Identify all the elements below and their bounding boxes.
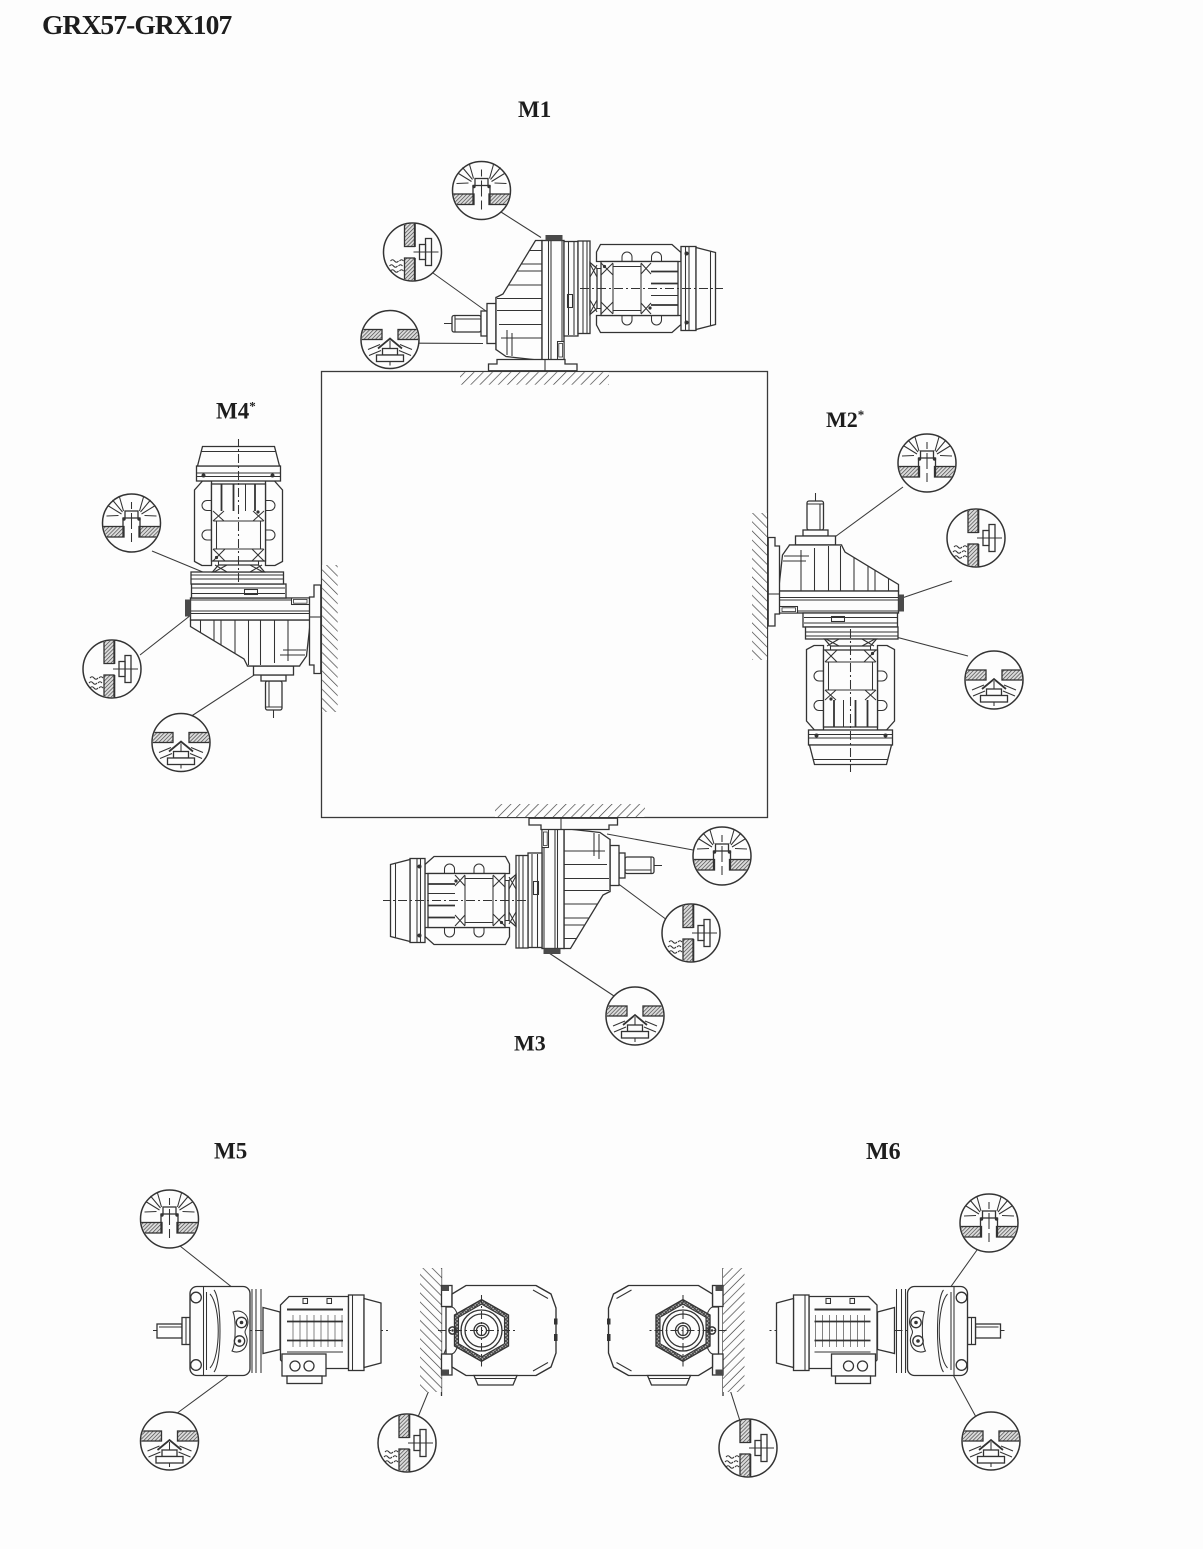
svg-text:M3: M3 bbox=[514, 1031, 546, 1056]
svg-text:GRX57-GRX107: GRX57-GRX107 bbox=[42, 9, 232, 40]
svg-text:M6: M6 bbox=[866, 1139, 901, 1165]
svg-text:M1: M1 bbox=[518, 97, 551, 122]
svg-text:M5: M5 bbox=[214, 1139, 247, 1164]
